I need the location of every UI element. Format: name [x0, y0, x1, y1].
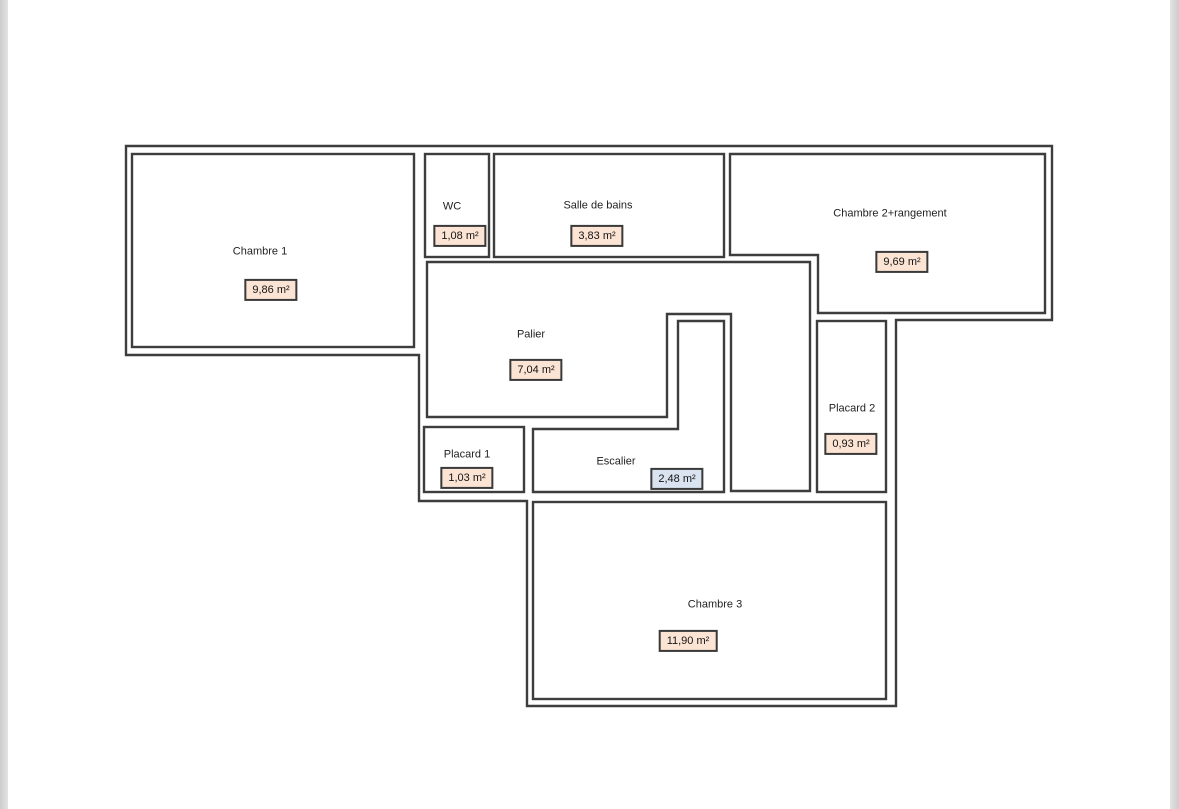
room-label-chambre-1: Chambre 1	[233, 245, 287, 258]
room-label-palier: Palier	[517, 328, 545, 341]
room-label-chambre-2-rangement: Chambre 2+rangement	[833, 207, 946, 220]
area-box-chambre-3: 11,90 m²	[659, 630, 718, 652]
area-box-salle-de-bains: 3,83 m²	[570, 225, 623, 247]
area-box-chambre-1: 9,86 m²	[244, 279, 297, 301]
area-box-palier: 7,04 m²	[509, 359, 562, 381]
area-box-placard-2: 0,93 m²	[824, 433, 877, 455]
floor-plan-drawing	[0, 0, 1179, 809]
area-box-escalier: 2,48 m²	[650, 468, 703, 490]
area-box-wc: 1,08 m²	[433, 225, 486, 247]
floor-plan-page: Chambre 1 WC Salle de bains Chambre 2+ra…	[0, 0, 1179, 809]
room-label-salle-de-bains: Salle de bains	[563, 199, 632, 212]
area-box-chambre-2-rangement: 9,69 m²	[875, 251, 928, 273]
room-label-placard-2: Placard 2	[829, 402, 875, 415]
area-box-placard-1: 1,03 m²	[440, 467, 493, 489]
room-label-chambre-3: Chambre 3	[688, 598, 742, 611]
room-label-wc: WC	[443, 200, 461, 213]
room-label-escalier: Escalier	[596, 455, 635, 468]
room-label-placard-1: Placard 1	[444, 448, 490, 461]
